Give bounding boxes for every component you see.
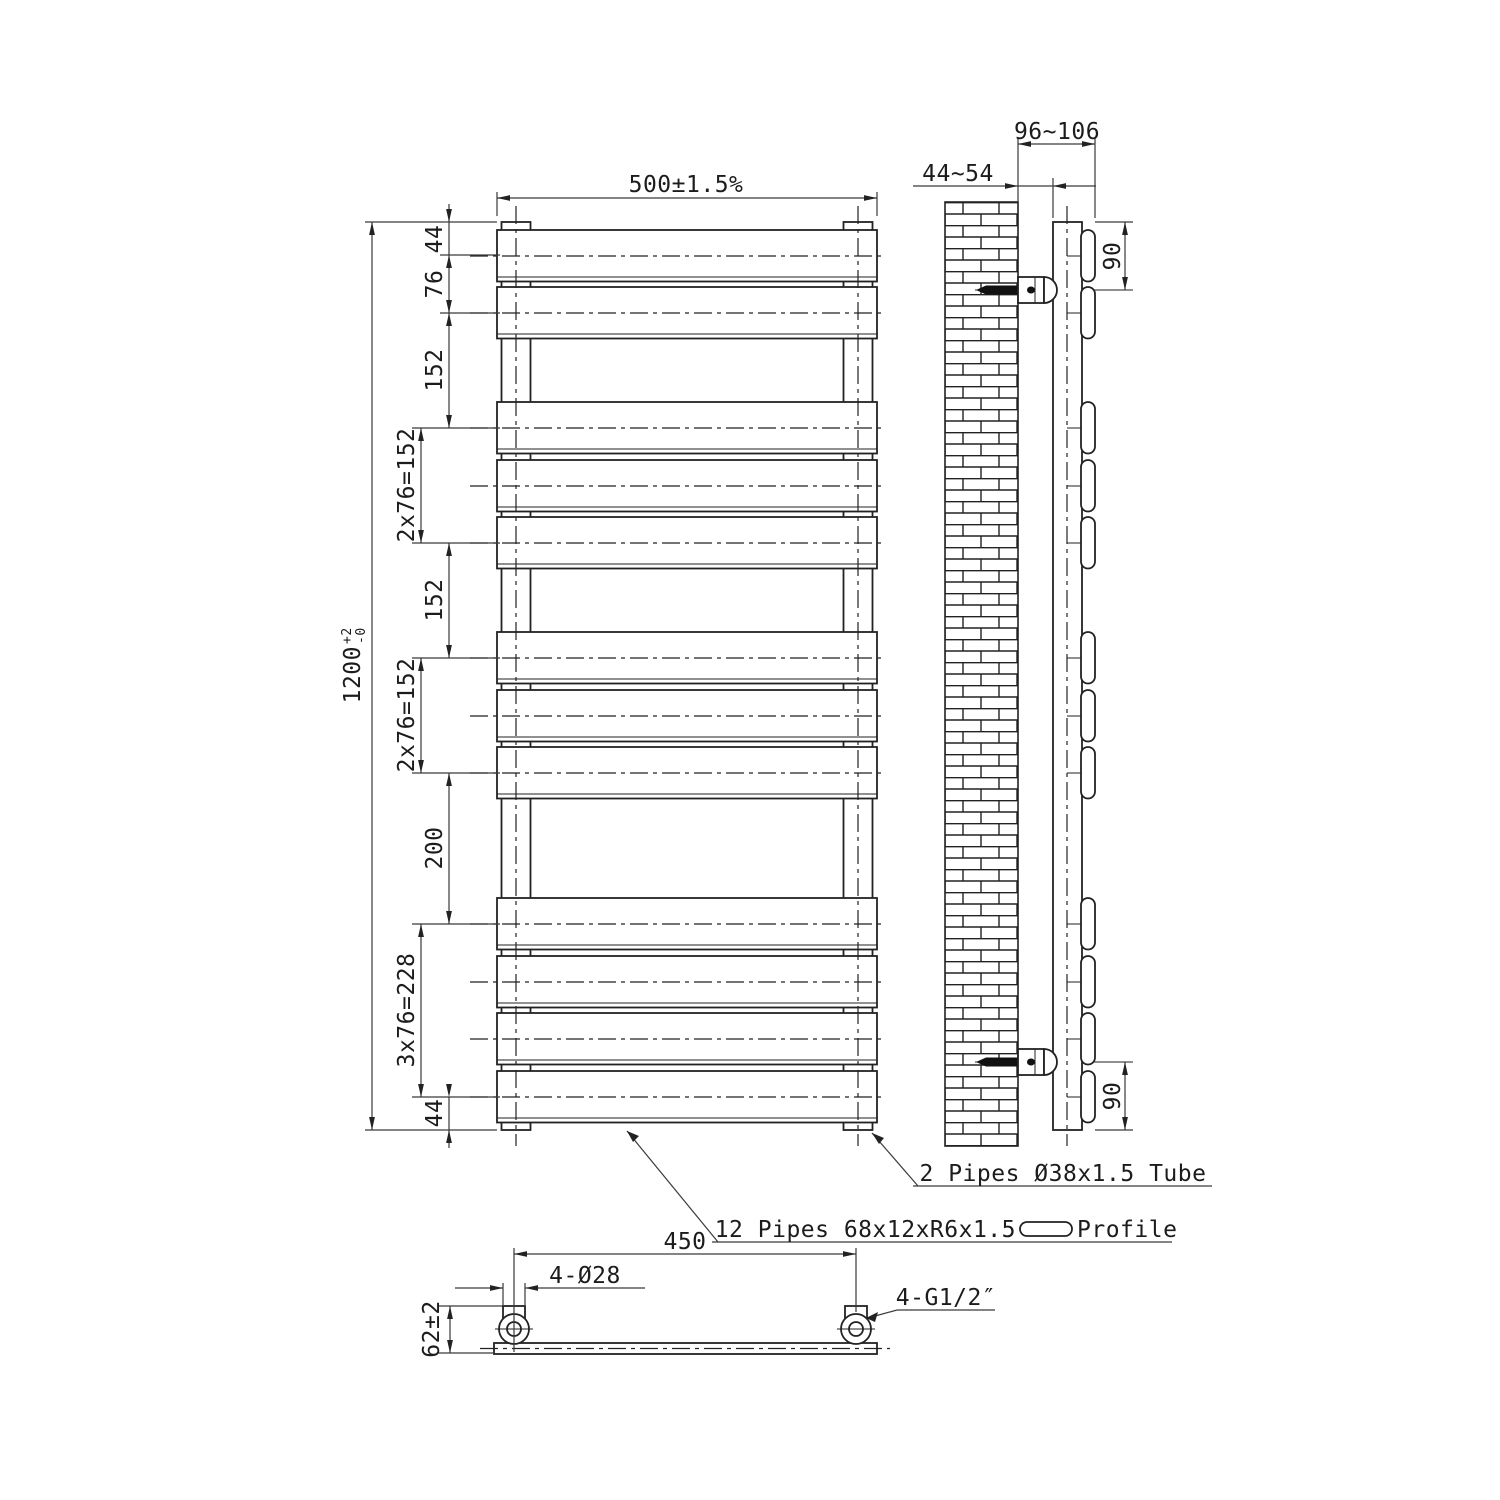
dim-chain-2x76-b: 2x76=152 [394,658,420,773]
dim-wall-gap-label: 44~54 [922,161,994,187]
dim-chain-200: 200 [422,826,448,869]
dim-arrowhead [514,1251,527,1257]
dim-arrowhead [1005,183,1018,189]
dim-depth-label: 96~106 [1014,119,1100,145]
dim-overall-height-tol-lower: -0 [354,627,369,644]
dim-arrowhead [446,543,452,556]
dim-bracket-top-label: 90 [1100,242,1126,271]
towel-radiator-drawing: 500±1.5% 44~54 96~106 90 90 44 76 152 2x… [0,0,1500,1500]
dim-overall-height-value: 1200 [340,646,366,703]
dim-overall-height: 1200 +2 -0 [340,627,369,703]
dim-arrowhead [446,415,452,428]
dim-arrowhead [418,1084,424,1097]
dim-arrowhead [446,209,452,222]
profile-callout-suffix: Profile [1077,1217,1177,1243]
dim-arrowhead [446,911,452,924]
dim-arrowhead [864,195,877,201]
dim-arrowhead [497,195,510,201]
dim-arrowhead [1122,277,1128,290]
tube-leader-arrow [872,1133,884,1144]
dim-arrowhead [446,313,452,326]
dim-arrowhead [446,773,452,786]
technical-drawing-page: 500±1.5% 44~54 96~106 90 90 44 76 152 2x… [0,0,1500,1500]
dim-connections-label: 4-Ø28 [549,1263,621,1289]
dim-arrowhead [418,924,424,937]
dim-chain-44-top: 44 [422,225,448,254]
dim-tube-centers-label: 450 [663,1229,706,1255]
dim-chain-44-bottom: 44 [422,1099,448,1128]
dim-arrowhead [447,1340,453,1353]
dim-arrowhead [369,222,375,235]
profile-leader-arrow [627,1131,639,1142]
dim-arrowhead [1053,183,1066,189]
plan-view [480,1306,890,1354]
tube-callout-label: 2 Pipes Ø38x1.5 Tube [920,1161,1207,1187]
dim-chain-152-a: 152 [422,348,448,391]
dim-chain-3x76: 3x76=228 [394,953,420,1068]
front-view [470,206,882,1146]
dim-arrowhead [446,1084,452,1097]
side-view [945,202,1133,1146]
dim-arrowhead [446,255,452,268]
dim-arrowhead [369,1117,375,1130]
dim-arrowhead [1122,222,1128,235]
dim-chain-152-b: 152 [422,578,448,621]
dim-chain-76: 76 [422,270,448,299]
dim-arrowhead [447,1306,453,1319]
dim-arrowhead [1122,1117,1128,1130]
dim-bracket-bottom-label: 90 [1100,1082,1126,1111]
dim-arrowhead [843,1251,856,1257]
dim-arrowhead [446,300,452,313]
dim-overall-width-label: 500±1.5% [629,172,744,198]
dim-arrowhead [525,1285,538,1291]
profile-symbol [1020,1222,1072,1236]
panel-rects [497,230,877,1123]
dim-arrowhead [1122,1062,1128,1075]
dim-plan-depth-label: 62±2 [419,1300,445,1357]
dim-arrowhead [446,645,452,658]
dim-arrowhead [446,1130,452,1143]
dim-arrowhead [490,1285,503,1291]
profile-callout-label: 12 Pipes 68x12xR6x1.5 [715,1217,1016,1243]
dim-thread-label: 4-G1/2″ [896,1285,996,1311]
dim-chain-2x76-a: 2x76=152 [394,428,420,543]
wall-section [945,202,1018,1146]
dim-overall-height-tol-upper: +2 [340,627,355,644]
